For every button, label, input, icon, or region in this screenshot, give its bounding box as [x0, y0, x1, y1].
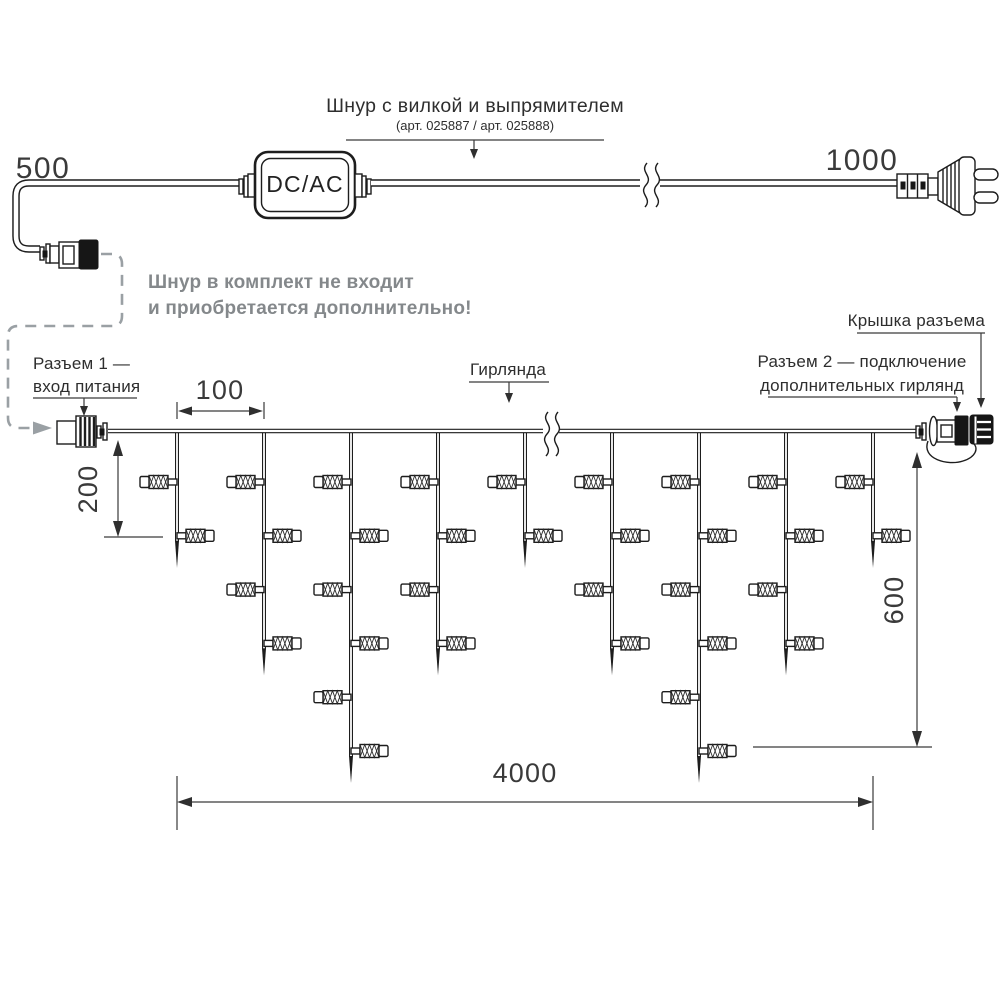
callout-connector2: Разъем 2 — подключение дополнительных ги… [757, 352, 966, 412]
power-plug [897, 157, 998, 215]
garland-label: Гирлянда [470, 360, 546, 379]
lamp-bulb [314, 476, 351, 489]
cord-not-included-note: Шнур в комплект не входит и приобретаетс… [148, 272, 472, 319]
dcac-label: DC/AC [266, 171, 344, 197]
lamp-bulb [488, 476, 525, 489]
lamp-bulb [351, 529, 388, 542]
wire-break-mark [545, 412, 550, 456]
dcac-converter: DC/AC [239, 152, 371, 218]
cord-break-mark [655, 163, 660, 207]
lamp-bulb [836, 476, 873, 489]
dim-500-label: 500 [16, 152, 71, 185]
lamp-bulb [612, 529, 649, 542]
connector-2-output [916, 415, 993, 463]
lamp-bulb [177, 529, 214, 542]
drop-tip [436, 648, 440, 675]
cord-article-numbers: (арт. 025887 / арт. 025888) [396, 118, 554, 133]
lamp-bulb [873, 529, 910, 542]
connector-cap [970, 415, 993, 444]
garland-drops [140, 430, 910, 783]
lamp-bulb [575, 476, 612, 489]
lamp-bulb [438, 529, 475, 542]
dashed-connection-path [8, 254, 122, 435]
dashed-arrow-head [33, 422, 52, 435]
drop-tip [784, 648, 788, 675]
garland-drop [575, 430, 649, 675]
garland-drop [140, 430, 214, 568]
cord-break-mark [644, 163, 649, 207]
note-line2: и приобретается дополнительно! [148, 298, 472, 319]
callout-garland: Гирлянда [469, 360, 549, 403]
drop-tip [610, 648, 614, 675]
lamp-bulb [351, 637, 388, 650]
dimension-4000: 4000 [177, 758, 873, 830]
lamp-bulb [699, 745, 736, 758]
garland-drop [749, 430, 823, 675]
lamp-bulb [612, 637, 649, 650]
drop-tip [523, 541, 527, 568]
lamp-bulb [314, 583, 351, 596]
connector-1-input [57, 416, 107, 447]
connector1-label-line2: вход питания [33, 377, 140, 396]
dim-100-label: 100 [196, 375, 245, 405]
cord-right-1000 [371, 163, 898, 207]
garland-drop [314, 430, 388, 783]
lamp-bulb [438, 637, 475, 650]
connector2-label-line1: Разъем 2 — подключение [757, 352, 966, 371]
drop-tip [871, 541, 875, 568]
lamp-bulb [662, 583, 699, 596]
lamp-bulb [575, 583, 612, 596]
lamp-bulb [662, 691, 699, 704]
lamp-bulb [401, 583, 438, 596]
dim-600-label: 600 [879, 576, 909, 625]
lamp-bulb [786, 529, 823, 542]
plug-prong [974, 169, 998, 180]
lamp-bulb [264, 529, 301, 542]
garland-wire [108, 412, 916, 456]
dimension-100: 100 [177, 375, 264, 419]
diagram-stage: DC/AC 500 1000 Шн [0, 0, 1000, 1000]
cord-title-callout: Шнур с вилкой и выпрямителем (арт. 02588… [326, 95, 624, 159]
lamp-bulb [227, 476, 264, 489]
connector2-label-line2: дополнительных гирлянд [760, 376, 964, 395]
lamp-bulb [140, 476, 177, 489]
drop-tip [349, 756, 353, 783]
lamp-bulb [314, 691, 351, 704]
dim-4000-label: 4000 [493, 758, 558, 788]
lamp-bulb [351, 745, 388, 758]
garland-drop [227, 430, 301, 675]
plug-prong [974, 192, 998, 203]
cap-label: Крышка разъема [848, 311, 986, 330]
lamp-bulb [401, 476, 438, 489]
lamp-bulb [662, 476, 699, 489]
drop-tip [175, 541, 179, 568]
garland-drop [488, 430, 562, 568]
note-line1: Шнур в комплект не входит [148, 272, 414, 293]
dimension-600: 600 [753, 452, 932, 747]
cord-left-500 [16, 183, 240, 249]
garland-drop [662, 430, 736, 783]
garland-drop [401, 430, 475, 675]
garland-drop [836, 430, 910, 568]
callout-connector1: Разъем 1 — вход питания [33, 354, 140, 416]
dim-1000-label: 1000 [826, 144, 899, 177]
drop-tip [262, 648, 266, 675]
lamp-bulb [227, 583, 264, 596]
dim-200-label: 200 [73, 465, 103, 514]
lamp-bulb [699, 637, 736, 650]
lamp-bulb [749, 583, 786, 596]
lamp-bulb [525, 529, 562, 542]
garland-technical-diagram: DC/AC 500 1000 Шн [0, 0, 1000, 1000]
connector1-label-line1: Разъем 1 — [33, 354, 130, 373]
wire-break-mark [555, 412, 560, 456]
cord-end-connector [40, 240, 98, 269]
lamp-bulb [749, 476, 786, 489]
lamp-bulb [699, 529, 736, 542]
lamp-bulb [264, 637, 301, 650]
lamp-bulb [786, 637, 823, 650]
drop-tip [697, 756, 701, 783]
cord-title: Шнур с вилкой и выпрямителем [326, 95, 624, 117]
